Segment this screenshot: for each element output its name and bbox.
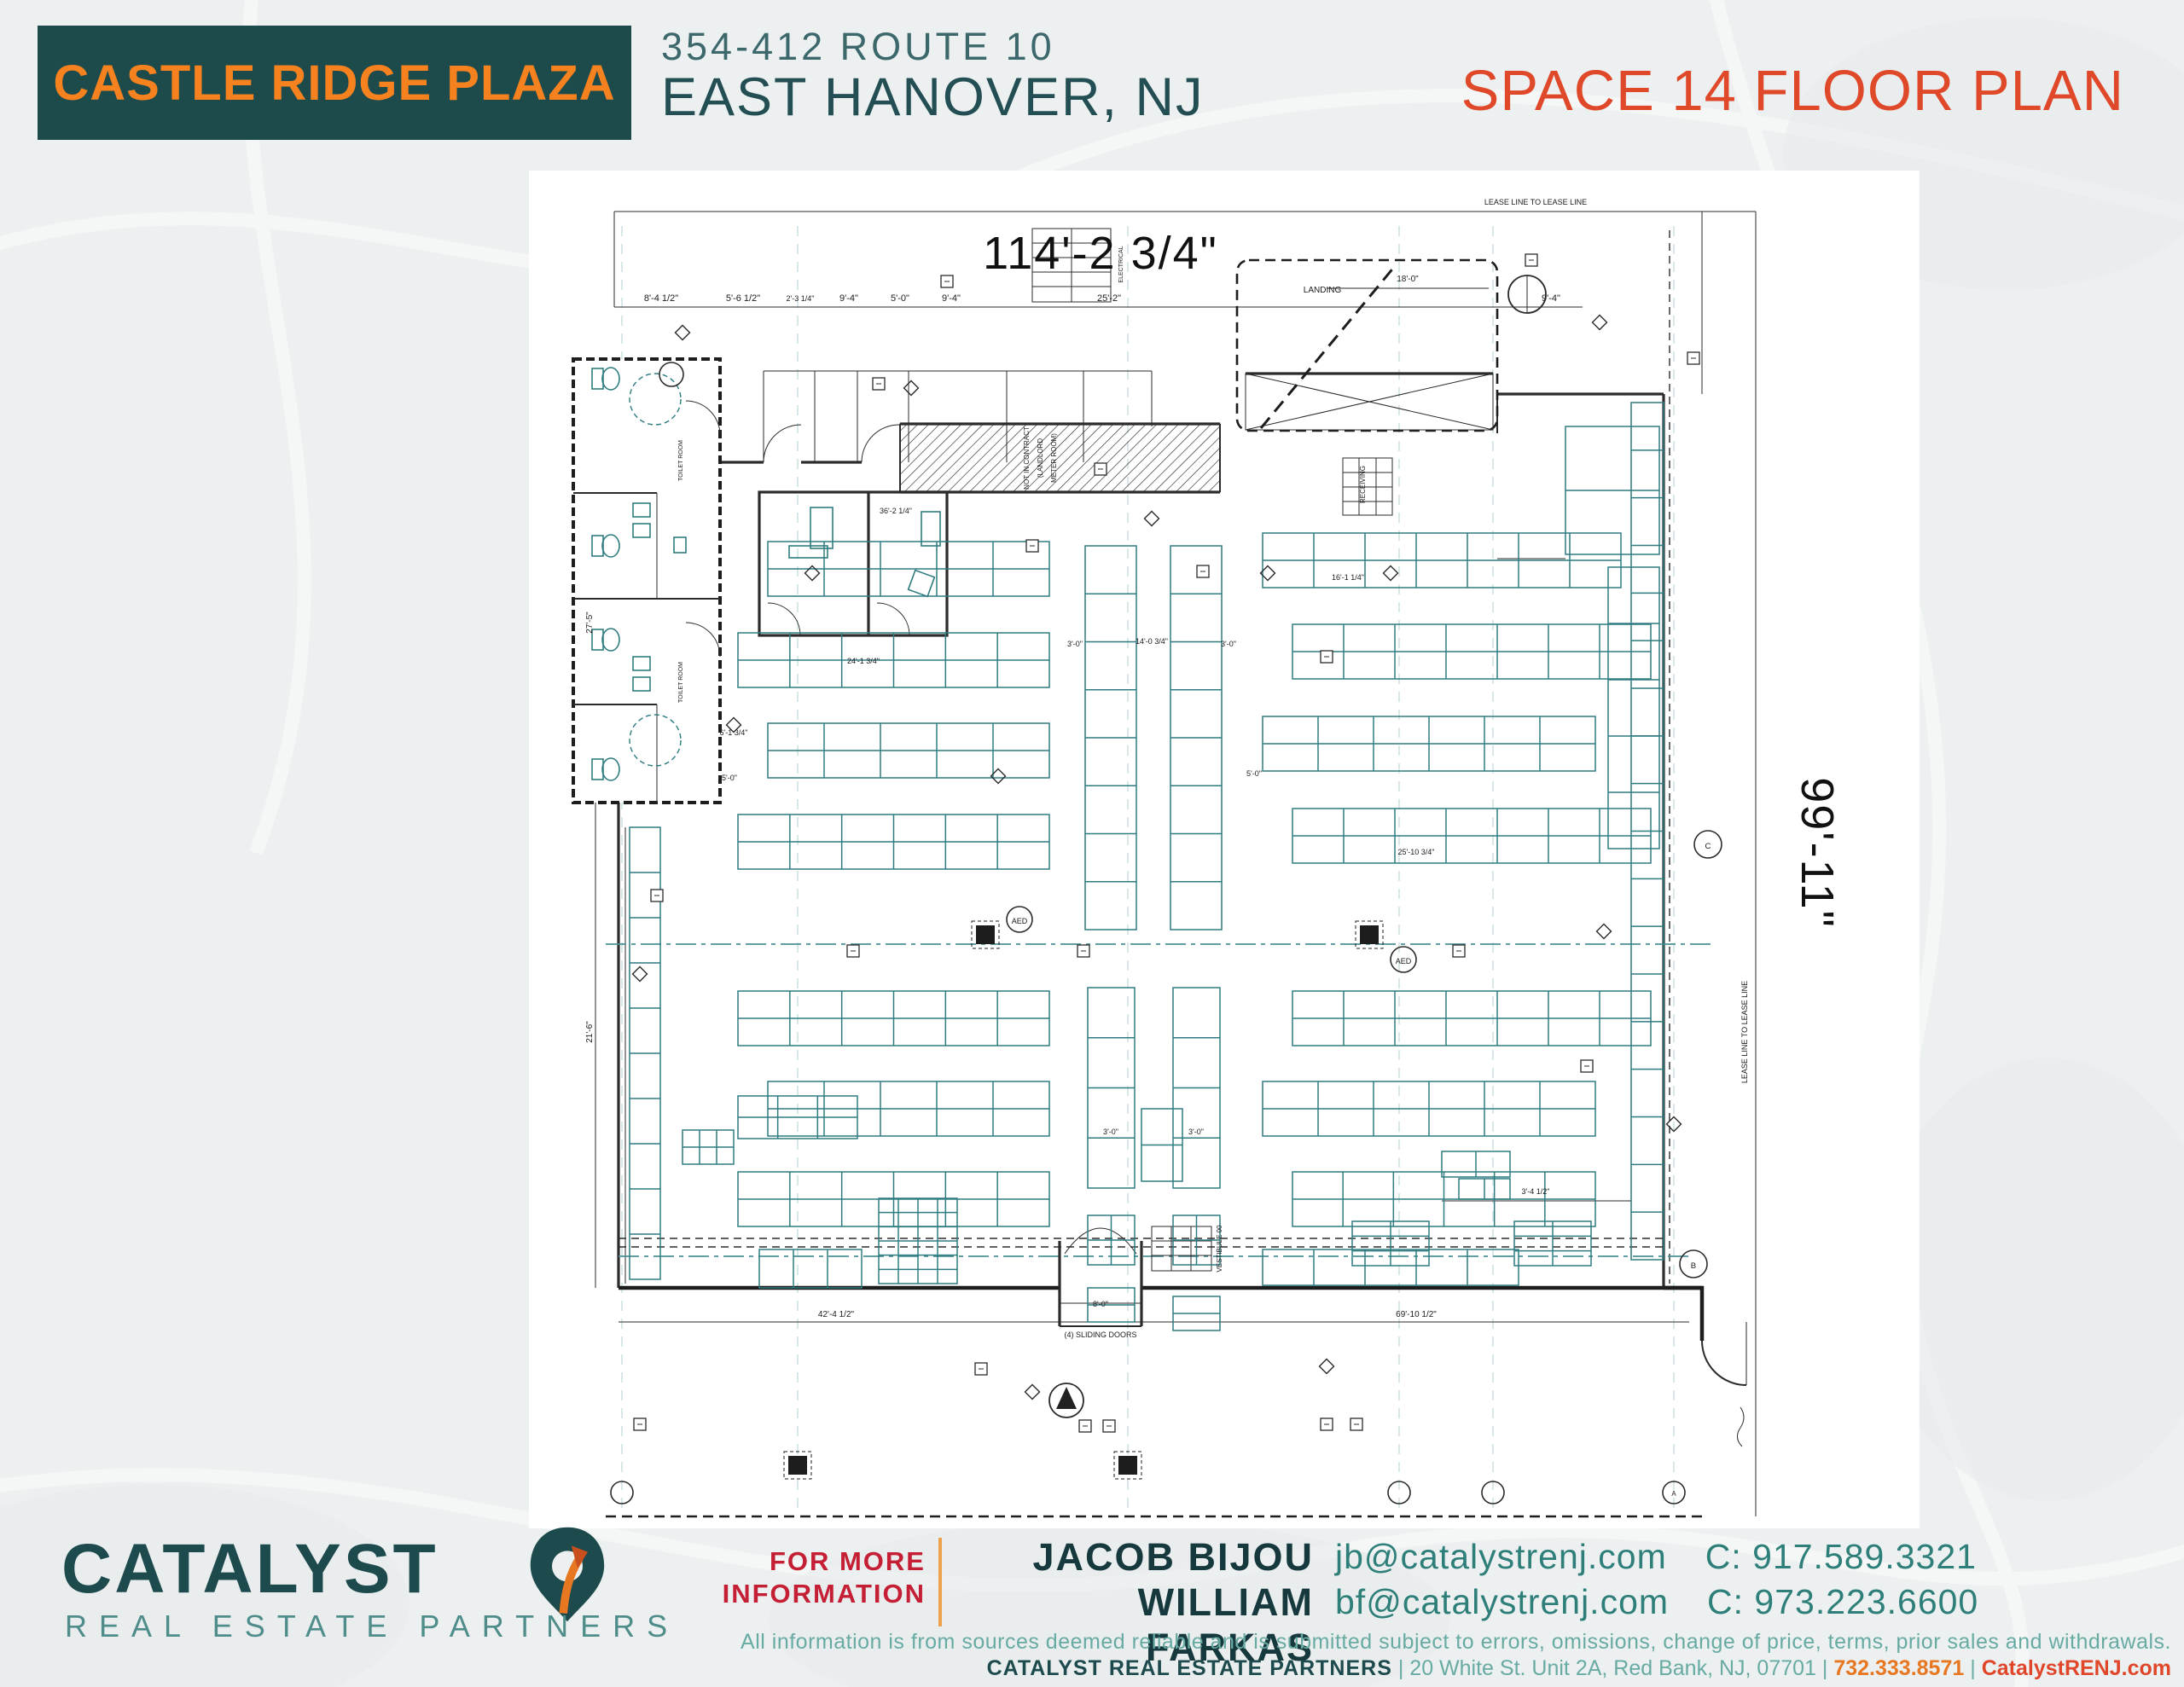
svg-text:3'-0": 3'-0": [1221, 640, 1236, 648]
svg-text:METER ROOM): METER ROOM): [1050, 433, 1058, 483]
svg-text:B: B: [1691, 1261, 1696, 1271]
address-city: EAST HANOVER, NJ: [661, 71, 1204, 125]
disclaimer-text: All information is from sources deemed r…: [0, 1630, 2171, 1655]
svg-text:AED: AED: [1396, 957, 1412, 965]
agent2-phone[interactable]: C: 973.223.6600: [1707, 1580, 1978, 1625]
svg-text:TOILET ROOM: TOILET ROOM: [678, 440, 684, 481]
page-title: SPACE 14 FLOOR PLAN: [1461, 58, 2124, 124]
svg-text:NOT IN CONTRACT: NOT IN CONTRACT: [1023, 426, 1031, 490]
svg-text:LEASE LINE TO LEASE LINE: LEASE LINE TO LEASE LINE: [1740, 981, 1749, 1083]
receiving-finish-schedule: [1343, 458, 1392, 515]
svg-text:LANDING: LANDING: [1304, 286, 1342, 295]
svg-text:3'-4 1/2": 3'-4 1/2": [1522, 1187, 1550, 1196]
for-more-information-label: FOR MORE INFORMATION: [712, 1545, 926, 1610]
svg-text:18'-0": 18'-0": [1397, 275, 1419, 284]
svg-text:5'-0": 5'-0": [722, 774, 737, 782]
svg-text:VESTIBULE 00: VESTIBULE 00: [1216, 1225, 1223, 1272]
svg-text:27'-5": 27'-5": [585, 612, 595, 634]
office-furniture: [789, 507, 940, 596]
address-street: 354-412 ROUTE 10: [661, 27, 1204, 66]
agent-name-1: JACOB BIJOU: [960, 1534, 1314, 1580]
svg-text:6'-1 3/4": 6'-1 3/4": [720, 728, 748, 737]
company-website[interactable]: CatalystRENJ.com: [1982, 1656, 2171, 1680]
svg-text:A: A: [1671, 1490, 1676, 1498]
svg-text:42'-4 1/2": 42'-4 1/2": [818, 1310, 855, 1319]
vestibule-finish-schedule: [1152, 1226, 1211, 1271]
footer-divider: [938, 1538, 942, 1626]
svg-text:9'-4": 9'-4": [942, 293, 961, 304]
svg-text:C: C: [1705, 842, 1711, 851]
gondola-shelving: [630, 403, 1664, 1330]
svg-text:8'-4 1/2": 8'-4 1/2": [644, 293, 678, 304]
property-address: 354-412 ROUTE 10 EAST HANOVER, NJ: [661, 27, 1204, 125]
company-phone[interactable]: 732.333.8571: [1833, 1656, 1964, 1680]
svg-text:21'-6": 21'-6": [585, 1021, 595, 1043]
company-contact-line: CATALYST REAL ESTATE PARTNERS | 20 White…: [0, 1656, 2171, 1681]
svg-text:5'-0": 5'-0": [891, 293, 909, 304]
svg-text:TOILET ROOM: TOILET ROOM: [678, 662, 684, 703]
hatched-landlord-area: [900, 424, 1220, 492]
plan-depth-dimension: 99'-11": [1792, 777, 1843, 929]
dimension-labels: LEASE LINE TO LEASE LINE8'-4 1/2"5'-6 1/…: [585, 198, 1749, 1339]
svg-text:3'-0": 3'-0": [1188, 1128, 1204, 1136]
agent1-email[interactable]: jb@catalystrenj.com: [1335, 1534, 1667, 1580]
svg-text:24'-1 3/4": 24'-1 3/4": [847, 657, 880, 665]
company-address: 20 White St. Unit 2A, Red Bank, NJ, 0770…: [1409, 1656, 1816, 1680]
svg-text:16'-1 1/4": 16'-1 1/4": [1332, 573, 1364, 582]
dimension-lines: [595, 212, 1756, 1516]
agent-contacts: jb@catalystrenj.com C: 917.589.3321 bf@c…: [1335, 1534, 1978, 1625]
svg-text:LEASE LINE TO LEASE LINE: LEASE LINE TO LEASE LINE: [1484, 198, 1587, 206]
svg-text:14'-0 3/4": 14'-0 3/4": [1136, 637, 1168, 646]
plaza-name: CASTLE RIDGE PLAZA: [53, 55, 615, 112]
office-rooms: [759, 492, 947, 635]
column-grid-lines: [622, 226, 1674, 1510]
svg-text:RECEIVING: RECEIVING: [1359, 466, 1367, 503]
svg-text:(4) SLIDING DOORS: (4) SLIDING DOORS: [1064, 1330, 1136, 1339]
svg-text:5'-6 1/2": 5'-6 1/2": [726, 293, 760, 304]
catalyst-logo-text: CATALYST: [61, 1529, 439, 1609]
restroom-block: [573, 359, 720, 803]
svg-text:25'-2": 25'-2": [1097, 293, 1121, 304]
loading-dock: [1237, 260, 1546, 431]
svg-text:AED: AED: [1012, 917, 1028, 925]
plaza-name-banner: CASTLE RIDGE PLAZA: [38, 26, 631, 140]
svg-text:25'-10 3/4": 25'-10 3/4": [1398, 848, 1435, 856]
svg-text:36'-2 1/4": 36'-2 1/4": [880, 507, 912, 515]
agent2-email[interactable]: bf@catalystrenj.com: [1335, 1580, 1669, 1625]
svg-text:69'-10 1/2": 69'-10 1/2": [1396, 1310, 1437, 1319]
svg-text:3'-0": 3'-0": [1067, 640, 1083, 648]
svg-text:9'-4": 9'-4": [839, 293, 858, 304]
floor-plan-drawing: ACBAEDAED LEASE LINE TO LEASE LINE8'-4 1…: [555, 179, 1885, 1544]
svg-text:(LANDLORD: (LANDLORD: [1037, 438, 1044, 478]
svg-text:5'-0": 5'-0": [1246, 769, 1262, 778]
svg-text:3'-0": 3'-0": [1103, 1128, 1118, 1136]
plan-width-dimension: 114'-2 3/4": [983, 228, 1218, 279]
company-name: CATALYST REAL ESTATE PARTNERS: [987, 1656, 1392, 1680]
svg-text:2'-3 1/4": 2'-3 1/4": [787, 294, 815, 303]
svg-text:8'-0": 8'-0": [1093, 1300, 1108, 1308]
svg-text:9'-4": 9'-4": [1542, 293, 1560, 304]
agent1-phone[interactable]: C: 917.589.3321: [1705, 1534, 1977, 1580]
